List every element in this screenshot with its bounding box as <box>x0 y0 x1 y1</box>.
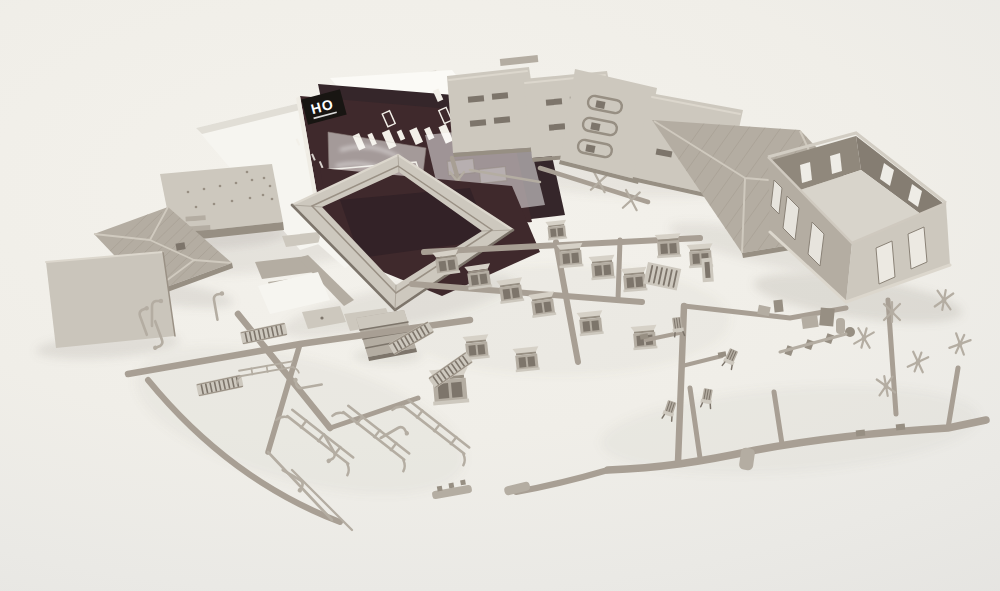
window-part <box>557 243 585 269</box>
photo-canvas: HO <box>0 0 1000 591</box>
window-part <box>655 233 683 258</box>
kit-photo: HO <box>0 0 1000 591</box>
finial-part <box>907 350 929 374</box>
chair-part <box>721 348 739 370</box>
window-part <box>545 220 568 241</box>
window-part <box>589 255 617 281</box>
finial-part <box>854 326 875 349</box>
door-part <box>701 258 714 283</box>
finial-part <box>949 332 972 357</box>
